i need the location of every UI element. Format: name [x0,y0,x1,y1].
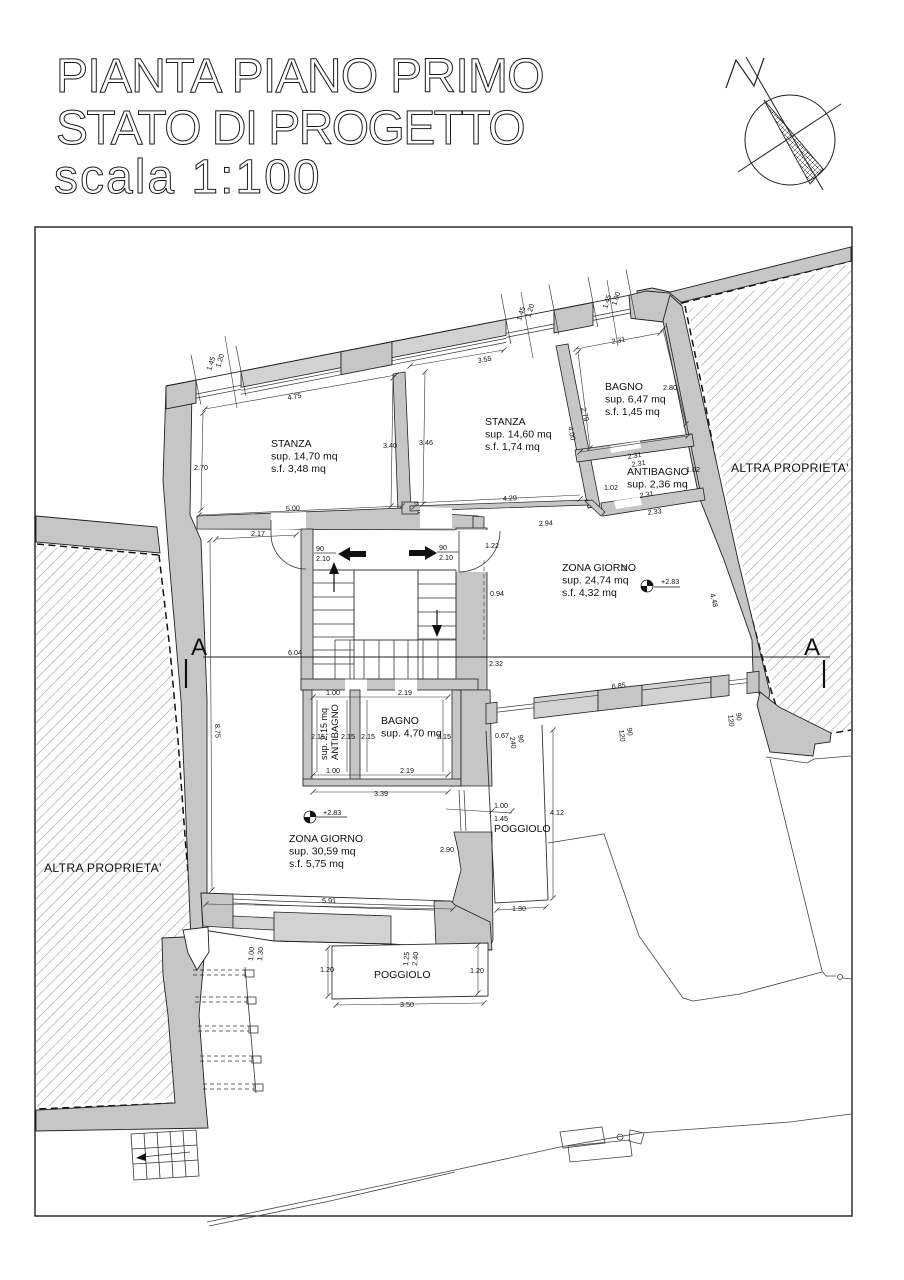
svg-text:POGGIOLO: POGGIOLO [374,969,431,981]
svg-text:120: 120 [726,714,736,727]
svg-text:2.19: 2.19 [398,688,412,697]
svg-text:POGGIOLO: POGGIOLO [494,823,551,835]
svg-text:0.67: 0.67 [495,731,509,740]
svg-text:1.22: 1.22 [485,541,499,550]
svg-text:sup. 24,74 mq: sup. 24,74 mq [562,575,629,587]
svg-text:3.50: 3.50 [400,1000,414,1009]
svg-text:2.15: 2.15 [341,732,355,741]
svg-text:2.80: 2.80 [663,383,677,392]
svg-text:4.29: 4.29 [503,493,517,503]
svg-text:90: 90 [439,543,447,552]
svg-text:+2.83: +2.83 [323,808,341,817]
svg-text:2.19: 2.19 [400,766,414,775]
svg-text:ALTRA PROPRIETA': ALTRA PROPRIETA' [731,461,849,475]
svg-text:scala 1:100: scala 1:100 [54,151,322,204]
svg-text:3.40: 3.40 [383,441,397,450]
svg-text:2.15: 2.15 [361,732,375,741]
svg-text:2.15: 2.15 [311,732,325,741]
svg-text:PIANTA PIANO PRIMO: PIANTA PIANO PRIMO [56,50,544,103]
svg-text:s.f. 3,48 mq: s.f. 3,48 mq [271,463,326,475]
svg-text:STANZA: STANZA [485,416,526,428]
svg-text:240: 240 [508,736,518,749]
svg-text:s.f. 4,32 mq: s.f. 4,32 mq [562,587,617,599]
svg-text:0.94: 0.94 [490,589,504,598]
svg-text:2.90: 2.90 [440,845,454,854]
svg-text:1.00: 1.00 [326,766,340,775]
svg-text:1.20: 1.20 [470,966,484,975]
svg-text:STANZA: STANZA [271,438,312,450]
svg-text:2.94: 2.94 [539,518,553,528]
svg-text:A: A [191,634,207,661]
svg-text:s.f. 1,45 mq: s.f. 1,45 mq [605,406,660,418]
svg-text:2.70: 2.70 [194,463,208,472]
svg-text:1.02: 1.02 [686,465,700,474]
svg-text:s.f. 1,74 mq: s.f. 1,74 mq [485,441,540,453]
svg-text:sup. 14,60 mq: sup. 14,60 mq [485,429,552,441]
svg-text:6.04: 6.04 [288,648,302,657]
svg-text:1.45: 1.45 [494,814,508,823]
svg-text:6.85: 6.85 [611,680,626,691]
svg-text:s.f. 5,75 mq: s.f. 5,75 mq [289,858,344,870]
svg-text:sup. 14,70 mq: sup. 14,70 mq [271,451,338,463]
svg-text:BAGNO: BAGNO [605,381,643,393]
svg-text:ANTIBAGNO: ANTIBAGNO [330,704,341,760]
svg-text:+2.83: +2.83 [661,577,679,586]
svg-text:5.00: 5.00 [286,503,300,513]
svg-text:1.00: 1.00 [494,801,508,810]
svg-text:5.91: 5.91 [322,896,336,905]
svg-text:1.00: 1.00 [326,688,340,697]
svg-text:8.75: 8.75 [213,724,222,738]
svg-text:2.10: 2.10 [439,553,453,562]
svg-text:2.10: 2.10 [316,554,330,563]
svg-text:2.40: 2.40 [410,951,420,966]
svg-text:4.12: 4.12 [550,808,564,817]
svg-text:1.30: 1.30 [255,946,265,961]
svg-text:1.30: 1.30 [512,904,526,913]
svg-text:STATO DI PROGETTO: STATO DI PROGETTO [56,102,524,155]
svg-text:3.39: 3.39 [374,789,388,798]
svg-text:sup. 2,36 mq: sup. 2,36 mq [627,479,688,491]
svg-text:sup. 4,70 mq: sup. 4,70 mq [381,728,442,740]
svg-text:sup. 6,47 mq: sup. 6,47 mq [605,394,666,406]
svg-text:ZONA GIORNO: ZONA GIORNO [289,833,363,845]
svg-text:120: 120 [617,729,627,742]
svg-text:BAGNO: BAGNO [381,715,419,727]
svg-text:2.32: 2.32 [489,659,503,668]
svg-text:1.20: 1.20 [320,965,334,974]
svg-text:ZONA GIORNO: ZONA GIORNO [562,562,636,574]
svg-text:3.46: 3.46 [419,438,433,447]
svg-text:2.15: 2.15 [437,732,451,741]
svg-text:ALTRA PROPRIETA': ALTRA PROPRIETA' [44,861,162,875]
svg-text:90: 90 [316,544,324,553]
svg-text:1.02: 1.02 [604,483,618,492]
svg-text:sup. 30,59 mq: sup. 30,59 mq [289,846,356,858]
svg-text:A: A [804,634,820,661]
